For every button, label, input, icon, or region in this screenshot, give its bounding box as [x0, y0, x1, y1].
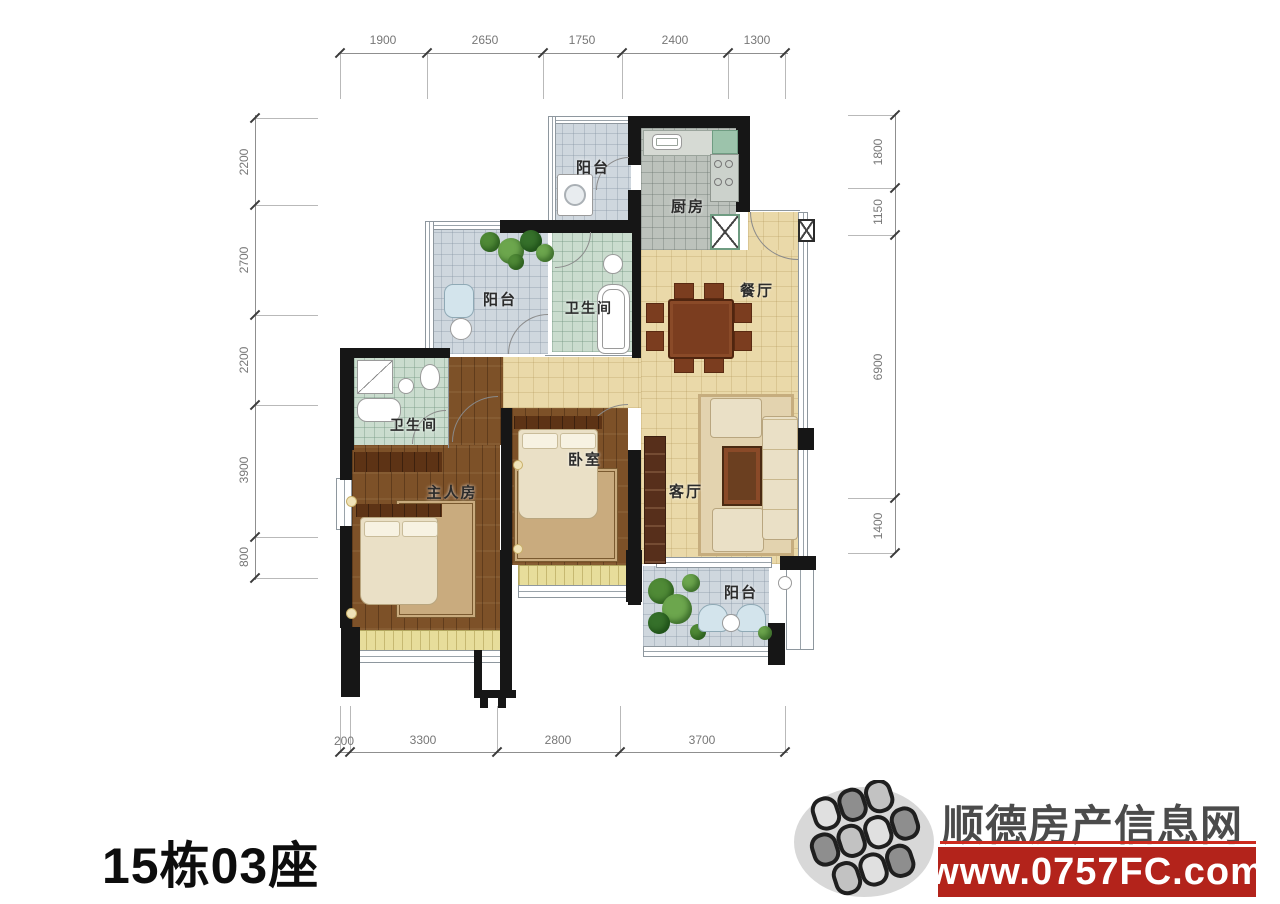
dining-table: [668, 299, 734, 359]
window-band: [425, 221, 434, 356]
room-label-bath-left: 卫生间: [390, 415, 438, 435]
dim-label: 200: [334, 734, 354, 748]
plant: [480, 232, 500, 252]
dim-ext: [255, 537, 318, 538]
bedside-lamp: [513, 460, 523, 470]
wall-segment: [498, 698, 506, 708]
bay-window-sill-master: [356, 630, 504, 652]
dining-chair: [704, 357, 724, 373]
dim-line-right: [895, 113, 896, 553]
window-band: [798, 212, 808, 560]
window-band: [518, 585, 632, 598]
dim-ext: [255, 118, 318, 119]
dining-chair: [734, 303, 752, 323]
room-label-master: 主人房: [426, 482, 477, 503]
dim-label: 1900: [370, 33, 397, 47]
bedroom-pillow: [560, 433, 596, 449]
room-label-balcony-bottom: 阳台: [724, 582, 758, 603]
dim-ext: [785, 53, 786, 99]
partition-line: [448, 358, 449, 448]
dim-ext: [848, 553, 895, 554]
master-bed-headboard: [356, 504, 442, 517]
dim-line-top: [338, 53, 788, 54]
kitchen-basin: [710, 214, 740, 250]
master-pillow: [364, 521, 400, 537]
dim-label: 2400: [662, 33, 689, 47]
sink: [398, 378, 414, 394]
wall-segment: [632, 230, 641, 358]
wall-segment: [628, 190, 641, 222]
dim-label: 800: [237, 547, 251, 567]
partition-line: [748, 210, 800, 211]
room-label-bedroom: 卧室: [568, 449, 602, 470]
stove-burner: [725, 178, 733, 186]
dim-line-left: [255, 115, 256, 580]
dining-chair: [646, 303, 664, 323]
room-label-dining: 餐厅: [740, 280, 774, 301]
toilet: [420, 364, 440, 390]
bay-window-sill-bedroom: [518, 565, 630, 587]
plant: [508, 254, 524, 270]
dim-ext: [255, 578, 318, 579]
dim-ext: [848, 188, 895, 189]
room-label-living: 客厅: [669, 481, 703, 502]
balcony-table: [450, 318, 472, 340]
master-pillow: [402, 521, 438, 537]
dim-ext: [255, 405, 318, 406]
site-url: www.0757FC.com: [929, 851, 1265, 894]
dim-label: 1400: [871, 513, 885, 540]
plant: [682, 574, 700, 592]
bedside-lamp: [346, 496, 357, 507]
wall-segment: [340, 348, 450, 358]
dining-chair: [734, 331, 752, 351]
dim-label: 6900: [871, 354, 885, 381]
dim-label: 3900: [237, 457, 251, 484]
wall-segment: [628, 450, 641, 605]
wall-segment: [628, 116, 750, 128]
wall-segment: [500, 550, 512, 693]
dim-label: 1800: [871, 139, 885, 166]
dim-ext: [620, 706, 621, 752]
wall-segment: [796, 428, 814, 450]
site-url-banner: www.0757FC.com: [938, 847, 1256, 897]
window-band: [643, 646, 772, 657]
dim-label: 2650: [472, 33, 499, 47]
dim-ext: [848, 498, 895, 499]
entry-door-frame: [798, 219, 815, 242]
stove-burner: [714, 160, 722, 168]
dim-ext: [543, 53, 544, 99]
room-label-bath-top: 卫生间: [565, 298, 613, 318]
site-logo: 顺德房产信息网 www.0757FC.com: [790, 778, 1260, 902]
coffee-table: [722, 446, 762, 506]
dim-ext: [785, 706, 786, 752]
wall-segment: [501, 408, 512, 553]
wall-segment: [474, 690, 516, 698]
dim-ext: [848, 235, 895, 236]
dim-ext: [497, 706, 498, 752]
dim-label: 1150: [871, 199, 885, 225]
dim-ext: [848, 115, 895, 116]
dining-chair: [674, 357, 694, 373]
washer-drum: [564, 184, 586, 206]
wall-segment: [480, 698, 488, 708]
dim-ext: [255, 315, 318, 316]
dim-ext: [427, 53, 428, 99]
dining-chair: [646, 331, 664, 351]
room-label-kitchen: 厨房: [671, 196, 705, 217]
dining-chair: [674, 283, 694, 299]
room-label-balcony-top: 阳台: [576, 157, 610, 178]
dim-label: 1300: [744, 33, 771, 47]
wash-basin: [778, 576, 792, 590]
dim-label: 3300: [410, 733, 437, 747]
dim-label: 2200: [237, 149, 251, 176]
floor-hall: [503, 357, 641, 408]
armchair: [712, 508, 764, 552]
wall-segment: [340, 450, 352, 480]
sofa: [762, 416, 798, 540]
dim-ext: [340, 53, 341, 99]
dim-label: 2200: [237, 347, 251, 374]
floorplan-canvas: 1900 2650 1750 2400 1300 200 3300 2800 3…: [0, 0, 1280, 904]
bathtub: [597, 284, 630, 354]
dim-label: 2800: [545, 733, 572, 747]
wall-segment: [340, 348, 354, 450]
shower: [357, 360, 393, 394]
bedroom-bed-headboard: [514, 416, 602, 429]
dim-ext: [255, 205, 318, 206]
sink: [603, 254, 623, 274]
dining-chair: [704, 283, 724, 299]
plant: [536, 244, 554, 262]
balcony-chair: [444, 284, 474, 318]
dim-label: 1750: [569, 33, 596, 47]
master-wardrobe: [354, 452, 442, 472]
wall-segment: [341, 627, 360, 697]
dim-ext: [622, 53, 623, 99]
dim-label: 3700: [689, 733, 716, 747]
stove-burner: [725, 160, 733, 168]
partition-line: [545, 355, 641, 356]
wall-segment: [780, 556, 816, 570]
site-name-underline: [940, 841, 1256, 844]
bedroom-pillow: [522, 433, 558, 449]
window-band: [548, 116, 556, 224]
dim-ext: [728, 53, 729, 99]
dim-label: 2700: [237, 247, 251, 274]
plan-title: 15栋03座: [102, 826, 319, 898]
tv-cabinet: [644, 436, 666, 564]
kitchen-cabinet: [712, 130, 738, 154]
window-band: [551, 116, 633, 124]
roof-tiles-icon: [790, 780, 938, 902]
balcony-table: [722, 614, 740, 632]
bedside-lamp: [513, 544, 523, 554]
kitchen-sink: [652, 134, 682, 150]
dim-line-bottom: [338, 752, 788, 753]
window-band: [428, 221, 504, 230]
room-label-balcony-mid: 阳台: [483, 289, 517, 310]
stove-burner: [714, 178, 722, 186]
window-band: [656, 557, 772, 568]
plant: [648, 612, 670, 634]
plant: [758, 626, 772, 640]
bedside-lamp: [346, 608, 357, 619]
armchair: [710, 398, 762, 438]
